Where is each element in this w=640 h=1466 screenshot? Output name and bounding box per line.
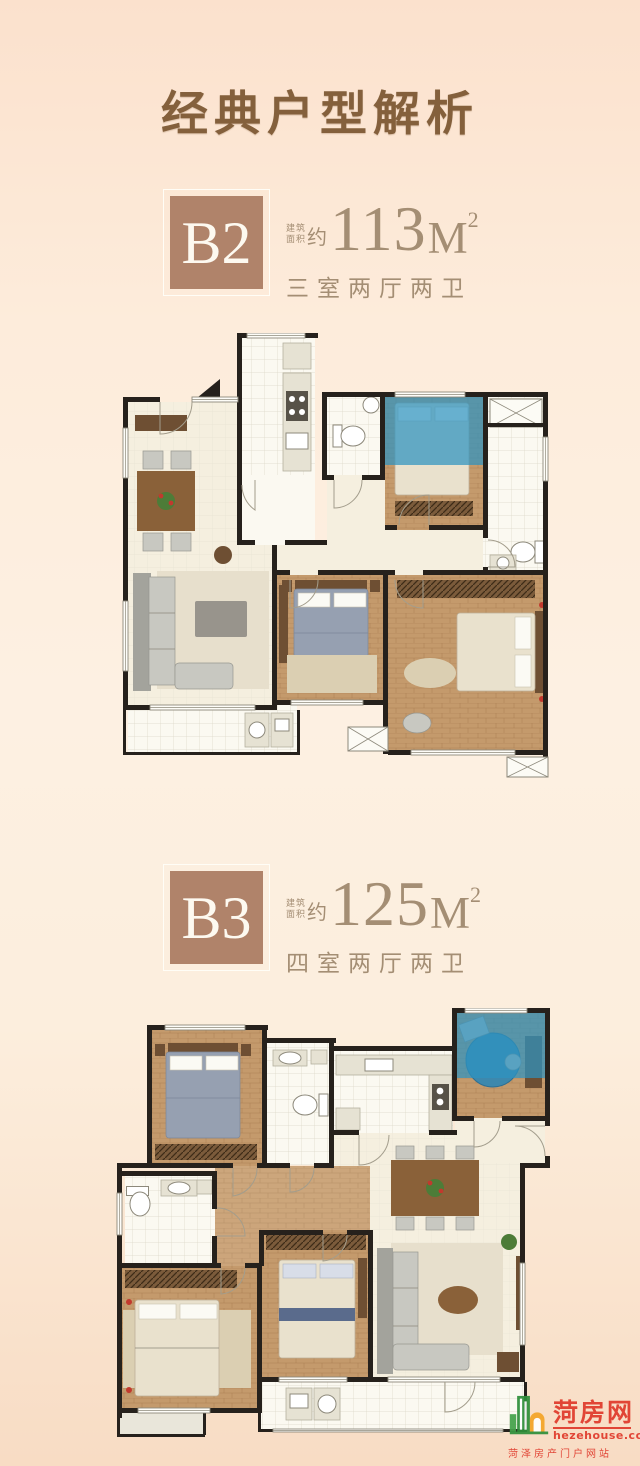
unit-code-box-fill: B2: [170, 196, 263, 289]
watermark-site-name: 菏房网: [553, 1400, 640, 1425]
area-label: 建筑 面积: [286, 899, 306, 920]
area-label-line2: 面积: [286, 910, 306, 920]
watermark-tagline: 菏泽房产门户网站: [508, 1445, 612, 1460]
unit-area-b3: 建筑 面积 约 125 M 2: [286, 872, 481, 936]
area-label-line2: 面积: [286, 235, 306, 245]
area-approx: 约: [307, 902, 327, 922]
b3-dining-room: [391, 1146, 479, 1230]
page-title: 经典户型解析: [0, 75, 640, 144]
unit-area-b2: 建筑 面积 约 113 M 2: [286, 197, 479, 261]
watermark-site-url: hezehouse.com: [553, 1430, 640, 1442]
b2-floor-plan-svg: [95, 333, 565, 798]
unit-header-b3: B3 建筑 面积 约 125 M 2 四室两厅两卫: [163, 864, 481, 978]
unit-meta-b3: 建筑 面积 约 125 M 2 四室两厅两卫: [286, 864, 481, 978]
unit-code-b3: B3: [181, 888, 251, 948]
b3-floor-plan: [93, 1008, 563, 1443]
b3-floor-plan-svg: [93, 1008, 563, 1443]
b2-bedroom-2: [282, 580, 380, 693]
promo-page: { "page": { "title": "经典户型解析" }, "units"…: [0, 0, 640, 1466]
unit-rooms-b2: 三室两厅两卫: [286, 269, 479, 303]
area-unit: M: [430, 891, 470, 936]
unit-code-b2: B2: [181, 213, 251, 273]
b2-kitchen: [283, 343, 311, 471]
site-watermark: 菏房网 hezehouse.com 菏泽房产门户网站: [508, 1390, 636, 1460]
unit-code-box-fill: B3: [170, 871, 263, 964]
watermark-text: 菏房网 hezehouse.com: [553, 1400, 640, 1442]
area-unit: M: [428, 216, 468, 261]
unit-header-b2: B2 建筑 面积 约 113 M 2 三室两厅两卫: [163, 189, 479, 303]
area-value: 125: [330, 872, 429, 936]
unit-rooms-b3: 四室两厅两卫: [286, 944, 481, 978]
b3-living-room: [377, 1234, 524, 1374]
area-approx: 约: [307, 227, 327, 247]
area-label-line1: 建筑: [286, 899, 306, 909]
b2-balcony: [245, 713, 293, 747]
b2-floor-plan: [95, 333, 565, 798]
unit-code-box-b2: B2: [163, 189, 270, 296]
hezehouse-logo-icon: [508, 1390, 550, 1442]
unit-code-box-b3: B3: [163, 864, 270, 971]
area-label: 建筑 面积: [286, 224, 306, 245]
b3-study-blue: [455, 1012, 545, 1088]
watermark-top-row: 菏房网 hezehouse.com: [508, 1390, 640, 1442]
area-superscript: 2: [468, 209, 479, 231]
unit-meta-b2: 建筑 面积 约 113 M 2 三室两厅两卫: [286, 189, 479, 303]
area-label-line1: 建筑: [286, 224, 306, 234]
area-superscript: 2: [470, 884, 481, 906]
area-value: 113: [330, 197, 427, 261]
